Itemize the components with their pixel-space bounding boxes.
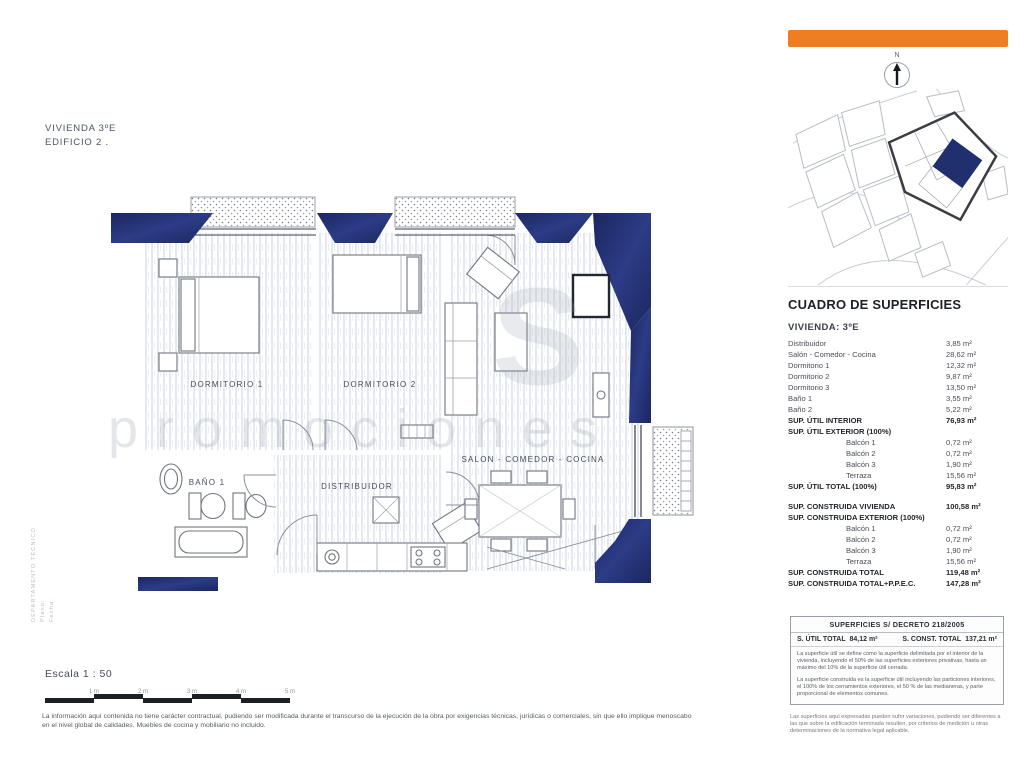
floor-plan: DORMITORIO 1 DORMITORIO 2 SALON - COMEDO… bbox=[95, 185, 695, 635]
surface-row-value: 15,56 m² bbox=[946, 470, 1008, 481]
surface-row-label: SUP. ÚTIL TOTAL (100%) bbox=[788, 481, 946, 492]
surface-row-label: Dormitorio 1 bbox=[788, 360, 946, 371]
surface-row-value: 9,87 m² bbox=[946, 371, 1008, 382]
location-map bbox=[788, 88, 1008, 287]
surface-row-value: 76,93 m² bbox=[946, 415, 1008, 426]
coffee-table bbox=[495, 313, 527, 371]
decree-notes: La superficie útil se define como la sup… bbox=[791, 647, 1003, 704]
surface-row-label: Dormitorio 2 bbox=[788, 371, 946, 382]
fridge bbox=[373, 497, 399, 523]
scale-bar-segments bbox=[45, 694, 290, 703]
surfaces-heading: CUADRO DE SUPERFICIES bbox=[788, 297, 1008, 312]
surface-row-label: Dormitorio 3 bbox=[788, 382, 946, 393]
info-panel: N bbox=[788, 0, 1008, 768]
surface-row: Terraza 15,56 m² bbox=[788, 556, 1008, 567]
surface-row: SUP. ÚTIL TOTAL (100%) 95,83 m² bbox=[788, 481, 1008, 492]
kitchen-counter bbox=[317, 543, 467, 571]
surface-row: Salón - Comedor - Cocina 28,62 m² bbox=[788, 349, 1008, 360]
side-cabinet bbox=[593, 373, 609, 417]
surface-row-value: 3,55 m² bbox=[946, 393, 1008, 404]
surface-row-value: 13,50 m² bbox=[946, 382, 1008, 393]
surface-row-value: 1,90 m² bbox=[946, 459, 1008, 470]
title-block-side-text: DEPARTAMENTO TÉCNICO Plano: Fecha: bbox=[30, 527, 57, 622]
surface-row-label: Balcón 2 bbox=[788, 534, 946, 545]
surface-row-value: 3,85 m² bbox=[946, 338, 1008, 349]
decree-box: SUPERFICIES S/ DECRETO 218/2005 S. ÚTIL … bbox=[790, 616, 1004, 705]
surface-row: Balcón 3 1,90 m² bbox=[788, 459, 1008, 470]
decree-const-label: S. CONST. TOTAL bbox=[902, 636, 961, 643]
unit-title-line: VIVIENDA 3ºE bbox=[45, 122, 116, 136]
surface-row: Dormitorio 2 9,87 m² bbox=[788, 371, 1008, 382]
surface-row-label: SUP. CONSTRUIDA VIVIENDA bbox=[788, 501, 946, 512]
surface-row: SUP. CONSTRUIDA VIVIENDA 100,58 m² bbox=[788, 501, 1008, 512]
label-dormitorio1: DORMITORIO 1 bbox=[191, 380, 264, 389]
surface-row: Balcón 3 1,90 m² bbox=[788, 545, 1008, 556]
surface-row-value: 0,72 m² bbox=[946, 437, 1008, 448]
surface-row-value: 0,72 m² bbox=[946, 448, 1008, 459]
bidet bbox=[233, 493, 245, 519]
surface-row-label: Balcón 1 bbox=[788, 437, 946, 448]
plan-sheet: VIVIENDA 3ºE EDIFICIO 2 . bbox=[0, 0, 1024, 768]
scale-label: Escala 1 : 50 bbox=[45, 668, 112, 680]
panel-footnote: Las superficies aquí expresadas pueden s… bbox=[790, 714, 1002, 736]
side-text-line2: Plano: bbox=[39, 527, 48, 622]
svg-text:5 m: 5 m bbox=[285, 689, 295, 695]
compass-north-label: N bbox=[894, 52, 899, 59]
surface-row-value: 5,22 m² bbox=[946, 404, 1008, 415]
scale-bar: 1 m 2 m 3 m 4 m 5 m bbox=[45, 686, 297, 708]
surface-row-value: 119,48 m² bbox=[946, 567, 1008, 578]
surface-row-label: Balcón 2 bbox=[788, 448, 946, 459]
surface-row-value: 147,28 m² bbox=[946, 578, 1008, 589]
balcony-1 bbox=[191, 197, 315, 227]
surface-row-label: SUP. CONSTRUIDA TOTAL+P.P.E.C. bbox=[788, 578, 946, 589]
surface-row-value: 12,32 m² bbox=[946, 360, 1008, 371]
shaft bbox=[573, 275, 609, 317]
decree-totals: S. ÚTIL TOTAL 84,12 m² S. CONST. TOTAL 1… bbox=[791, 633, 1003, 647]
surface-row-label: Balcón 3 bbox=[788, 545, 946, 556]
surface-row-value: 28,62 m² bbox=[946, 349, 1008, 360]
decree-const-value: 137,21 m² bbox=[965, 636, 997, 643]
surface-row: Baño 2 5,22 m² bbox=[788, 404, 1008, 415]
surface-row: Baño 1 3,55 m² bbox=[788, 393, 1008, 404]
label-distribuidor: DISTRIBUIDOR bbox=[321, 482, 393, 491]
surface-row: SUP. CONSTRUIDA EXTERIOR (100%) bbox=[788, 512, 1008, 523]
decree-note-1: La superficie útil se define como la sup… bbox=[797, 651, 997, 673]
surface-row: SUP. ÚTIL INTERIOR 76,93 m² bbox=[788, 415, 1008, 426]
surface-row: SUP. ÚTIL EXTERIOR (100%) bbox=[788, 426, 1008, 437]
surface-row: Balcón 1 0,72 m² bbox=[788, 437, 1008, 448]
surface-row-label: Distribuidor bbox=[788, 338, 946, 349]
surface-row-label: SUP. ÚTIL EXTERIOR (100%) bbox=[788, 426, 946, 437]
surface-row-value: 1,90 m² bbox=[946, 545, 1008, 556]
decree-util-label: S. ÚTIL TOTAL bbox=[797, 636, 846, 643]
surface-row-label: SUP. CONSTRUIDA EXTERIOR (100%) bbox=[788, 512, 946, 523]
disclaimer-line1: La información aquí contenida no tiene c… bbox=[42, 712, 778, 721]
label-dormitorio2: DORMITORIO 2 bbox=[344, 380, 417, 389]
surface-row-value: 0,72 m² bbox=[946, 534, 1008, 545]
decree-note-2: La superficie construida es la superfici… bbox=[797, 677, 997, 699]
accent-bar bbox=[788, 30, 1008, 47]
vivienda-label: VIVIENDA: 3ºE bbox=[788, 322, 859, 333]
surface-row-value bbox=[946, 512, 1008, 523]
surface-row: Balcón 2 0,72 m² bbox=[788, 534, 1008, 545]
surface-row-value: 0,72 m² bbox=[946, 523, 1008, 534]
surface-row: Balcón 2 0,72 m² bbox=[788, 448, 1008, 459]
surface-table: Distribuidor 3,85 m² Salón - Comedor - C… bbox=[788, 338, 1008, 589]
label-bano1: BAÑO 1 bbox=[189, 478, 226, 487]
building-line: EDIFICIO 2 . bbox=[45, 136, 116, 150]
decree-util-value: 84,12 m² bbox=[850, 636, 878, 643]
surface-row: SUP. CONSTRUIDA TOTAL 119,48 m² bbox=[788, 567, 1008, 578]
decree-const: S. CONST. TOTAL 137,21 m² bbox=[902, 636, 997, 643]
surface-row-label: Terraza bbox=[788, 470, 946, 481]
surface-row-value: 100,58 m² bbox=[946, 501, 1008, 512]
surface-row: Dormitorio 1 12,32 m² bbox=[788, 360, 1008, 371]
surface-row-value bbox=[946, 426, 1008, 437]
disclaimer: La información aquí contenida no tiene c… bbox=[42, 712, 778, 730]
decree-title: SUPERFICIES S/ DECRETO 218/2005 bbox=[791, 617, 1003, 633]
surface-row-label: SUP. CONSTRUIDA TOTAL bbox=[788, 567, 946, 578]
surface-row: Balcón 1 0,72 m² bbox=[788, 523, 1008, 534]
balcony-2 bbox=[395, 197, 515, 227]
decree-util: S. ÚTIL TOTAL 84,12 m² bbox=[797, 636, 878, 643]
surface-row-value: 15,56 m² bbox=[946, 556, 1008, 567]
side-text-line1: DEPARTAMENTO TÉCNICO bbox=[30, 527, 39, 622]
surface-row: SUP. CONSTRUIDA TOTAL+P.P.E.C. 147,28 m² bbox=[788, 578, 1008, 589]
surface-row: Distribuidor 3,85 m² bbox=[788, 338, 1008, 349]
surface-row-label: Baño 1 bbox=[788, 393, 946, 404]
surface-row: Dormitorio 3 13,50 m² bbox=[788, 382, 1008, 393]
surface-row-label: Salón - Comedor - Cocina bbox=[788, 349, 946, 360]
side-text-line3: Fecha: bbox=[48, 527, 57, 622]
surface-row-label: Balcón 3 bbox=[788, 459, 946, 470]
surface-row-value: 95,83 m² bbox=[946, 481, 1008, 492]
label-salon: SALON - COMEDOR - COCINA bbox=[461, 455, 604, 464]
compass-icon: N bbox=[876, 47, 920, 93]
surface-row-label: Balcón 1 bbox=[788, 523, 946, 534]
unit-title: VIVIENDA 3ºE EDIFICIO 2 . bbox=[45, 122, 116, 150]
surface-row-label: SUP. ÚTIL INTERIOR bbox=[788, 415, 946, 426]
disclaimer-line2: en el nivel global de calidades. Muebles… bbox=[42, 721, 778, 730]
surface-row: Terraza 15,56 m² bbox=[788, 470, 1008, 481]
surface-row-label: Baño 2 bbox=[788, 404, 946, 415]
toilet bbox=[189, 493, 201, 519]
surface-row-label: Terraza bbox=[788, 556, 946, 567]
